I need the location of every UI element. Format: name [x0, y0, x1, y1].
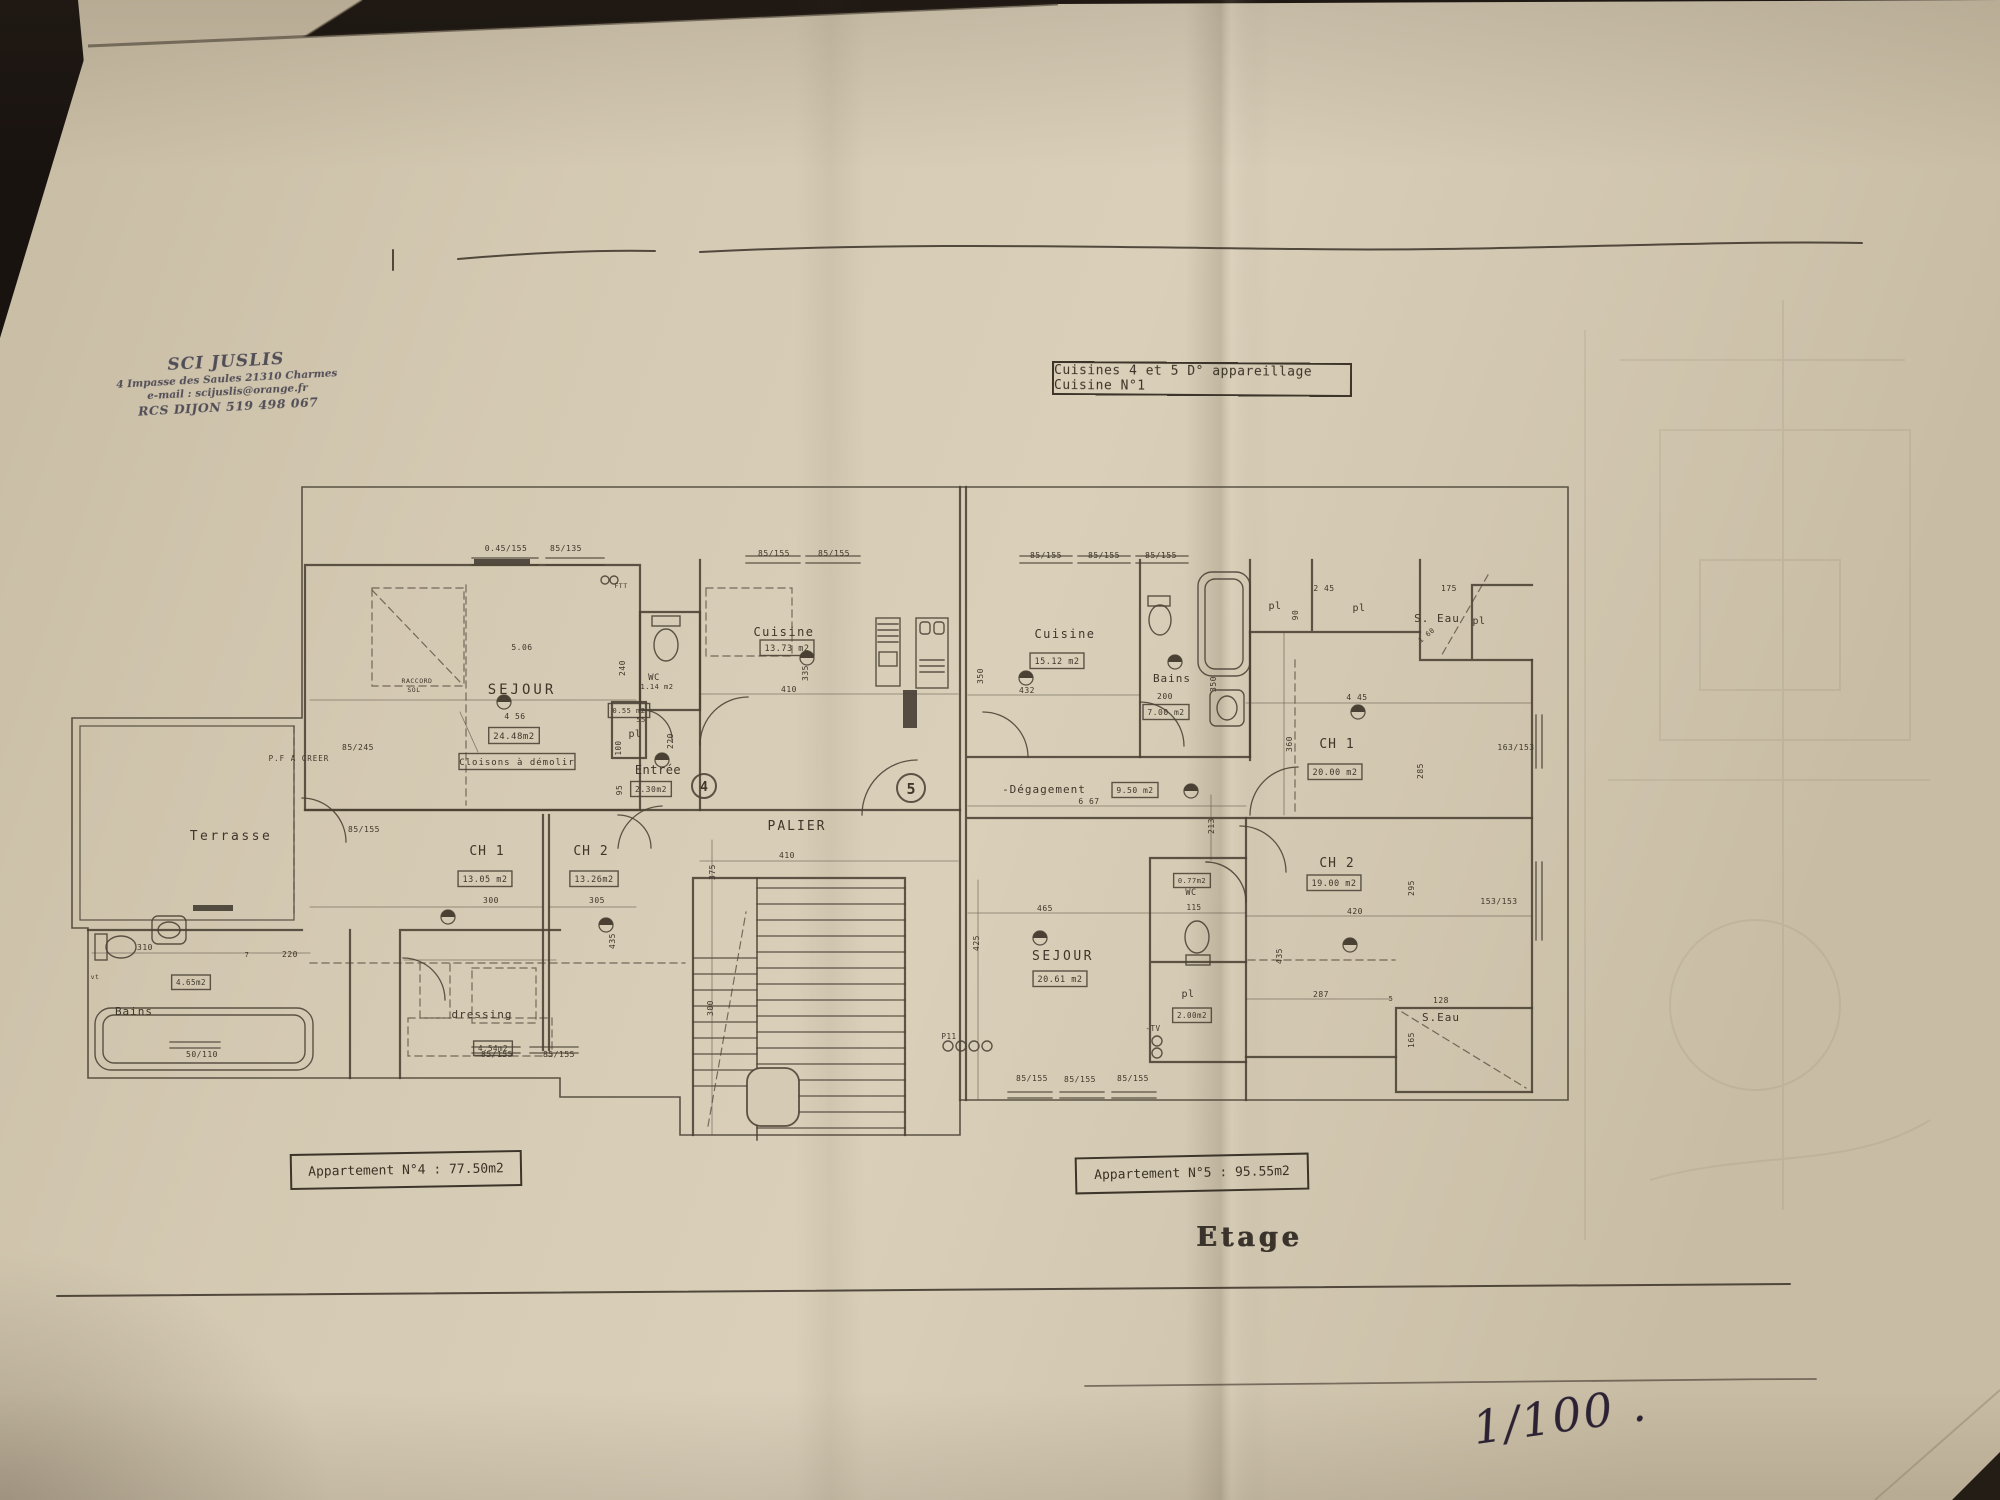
plan-label: 20.00 m2 — [1313, 768, 1358, 778]
title-text: Cuisines 4 et 5 D° appareillage Cuisine … — [1054, 363, 1350, 395]
plan-label: 5 — [1389, 995, 1394, 1003]
paper-crease — [1185, 0, 1270, 1500]
plan-label: Bains — [1153, 672, 1191, 685]
plan-label: 4 56 — [504, 712, 525, 721]
plan-label: 360 — [1285, 736, 1294, 752]
plan-label: Entrée — [635, 763, 681, 777]
plan-label: 285 — [1416, 763, 1425, 779]
plan-label: 85/155 — [1030, 551, 1062, 560]
plan-label: 100 — [614, 740, 623, 755]
plan-label: 85/155 — [1088, 551, 1120, 560]
plan-label: 128 — [1433, 996, 1449, 1005]
plan-label: 55 — [636, 716, 645, 724]
plan-label: 85/155 — [348, 825, 380, 834]
plan-label: 465 — [1037, 904, 1053, 913]
svg-text:5: 5 — [906, 780, 915, 798]
plan-label: 435 — [1275, 948, 1284, 964]
plan-label: 85/155 — [1064, 1075, 1096, 1084]
plan-label: 20.61 m2 — [1038, 975, 1083, 985]
plan-label: CH 1 — [1319, 737, 1354, 752]
apartment4-label: Appartement N°4 : 77.50m2 — [308, 1161, 504, 1179]
photographed-floor-plan: 4 5 TerrasseP.F A CREERSEJOUR4 565.0624.… — [0, 0, 2000, 1500]
plan-label: WC — [648, 673, 660, 683]
plan-label: 300 — [483, 896, 499, 905]
plan-label: CH 1 — [469, 844, 504, 859]
plan-label: Bains — [115, 1005, 153, 1018]
plan-label: 305 — [589, 896, 605, 905]
svg-text:4: 4 — [700, 780, 708, 795]
plan-label: 6 67 — [1078, 797, 1099, 806]
plan-label: 85/155 — [1145, 551, 1177, 560]
plan-label: 2.00m2 — [1177, 1011, 1207, 1020]
plan-label: 410 — [779, 851, 795, 860]
plan-label: pl — [1268, 601, 1281, 612]
plan-label: 1.14 m2 — [640, 683, 673, 691]
plan-label: 85/135 — [550, 544, 582, 553]
plan-label: 350 — [976, 668, 985, 684]
plan-label: -Dégagement — [1002, 783, 1086, 796]
plan-label: SEJOUR — [488, 682, 557, 698]
apartment5-label-box: Appartement N°5 : 95.55m2 — [1075, 1153, 1310, 1195]
plan-label: CH 2 — [573, 844, 608, 859]
plan-label: S. Eau — [1414, 612, 1460, 625]
plan-label: 7.00 m2 — [1147, 708, 1184, 717]
plan-label: dressing — [452, 1008, 513, 1021]
plan-label: P11 — [941, 1032, 956, 1041]
plan-label: 19.00 m2 — [1312, 879, 1357, 889]
paper-crease — [795, 0, 865, 1500]
plan-label: 165 — [1407, 1032, 1416, 1048]
plan-label: 85/155 — [1016, 1074, 1048, 1083]
plan-label: 9.50 m2 — [1116, 786, 1153, 795]
plan-label: 13.05 m2 — [463, 875, 508, 885]
plan-label: 350 — [1209, 676, 1218, 692]
plan-label: 163/153 — [1497, 743, 1534, 752]
plan-label: PALIER — [768, 819, 827, 834]
plan-label: 50/110 — [186, 1050, 218, 1059]
plan-label: 220 — [666, 733, 675, 749]
plan-label: 85/155 — [758, 549, 790, 558]
plan-label: 2 45 — [1313, 584, 1334, 593]
plan-label: 85/155 — [543, 1050, 575, 1059]
plan-label: 375 — [708, 864, 717, 880]
plan-label: 13.73 m2 — [765, 644, 810, 654]
plan-label: 85/155 — [1117, 1074, 1149, 1083]
plan-label: 0.77m2 — [1178, 877, 1206, 885]
plan-label: pl — [1472, 616, 1485, 627]
plan-label: pl — [628, 729, 641, 740]
plan-label: 175 — [1441, 584, 1457, 593]
plan-label: 200 — [1157, 692, 1173, 701]
plan-label: 287 — [1313, 990, 1329, 999]
plan-label: 4 45 — [1346, 693, 1367, 702]
plan-label: 310 — [137, 943, 153, 952]
plan-label: 15.12 m2 — [1035, 657, 1080, 667]
plan-label: WC — [1185, 888, 1196, 898]
plan-label: 85/155 — [481, 1050, 513, 1059]
plan-label: 95 — [615, 785, 624, 796]
plan-label: pl — [1181, 989, 1194, 1000]
plan-label: 24.48m2 — [493, 732, 534, 742]
title-box: Cuisines 4 et 5 D° appareillage Cuisine … — [1052, 361, 1352, 397]
plan-label: 435 — [608, 933, 617, 949]
plan-label: RACCORD — [402, 677, 433, 685]
plan-label: 0.45/155 — [485, 544, 528, 553]
plan-label: -TV — [1145, 1024, 1160, 1033]
plan-label: vt — [91, 973, 100, 981]
plan-label: CH 2 — [1319, 856, 1354, 871]
floor-title: Etage — [1196, 1222, 1336, 1253]
plan-label: Cuisine — [753, 625, 814, 639]
plan-label: S.Eau — [1422, 1011, 1460, 1024]
apartment5-label: Appartement N°5 : 95.55m2 — [1094, 1164, 1290, 1183]
plan-label: 295 — [1407, 880, 1416, 896]
plan-label: SOL — [407, 686, 420, 694]
apartment4-label-box: Appartement N°4 : 77.50m2 — [290, 1150, 523, 1190]
plan-label: 432 — [1019, 686, 1035, 695]
plan-label: 5.06 — [511, 643, 532, 652]
plan-label: 13.26m2 — [574, 875, 613, 885]
plan-label: 85/245 — [342, 743, 374, 752]
plan-label: 213 — [1207, 818, 1216, 834]
plan-label: 240 — [618, 660, 627, 676]
stair-landing — [747, 1068, 799, 1126]
paper-sheet — [0, 0, 2000, 1500]
plan-label: 335 — [801, 665, 810, 681]
plan-label: 4.65m2 — [176, 978, 206, 987]
plan-label: Terrasse — [190, 829, 273, 844]
plan-label: FTT — [614, 582, 627, 590]
plan-label: 153/153 — [1480, 897, 1517, 906]
floor-plan-photo: 4 5 TerrasseP.F A CREERSEJOUR4 565.0624.… — [0, 0, 2000, 1500]
plan-label: 115 — [1186, 903, 1201, 912]
plan-label: 420 — [1347, 907, 1363, 916]
plan-label: 2.30m2 — [635, 785, 667, 794]
plan-label: 0.55 m2 — [612, 707, 645, 715]
plan-label: P.F A CREER — [269, 754, 330, 763]
plan-label: SEJOUR — [1032, 949, 1094, 964]
plan-label: 300 — [706, 1000, 715, 1016]
plan-label: 425 — [972, 935, 981, 951]
plan-label: 7 — [245, 951, 250, 959]
plan-label: Cloisons à démolir — [459, 757, 575, 768]
plan-label: Cuisine — [1034, 627, 1095, 641]
company-stamp: SCI JUSLIS 4 Impasse des Saules 21310 Ch… — [111, 346, 344, 420]
plan-label: 220 — [282, 950, 298, 959]
plan-label: pl — [1352, 603, 1365, 614]
plan-label: 90 — [1291, 610, 1300, 621]
plan-label: 85/155 — [818, 549, 850, 558]
plan-label: 410 — [781, 685, 797, 694]
